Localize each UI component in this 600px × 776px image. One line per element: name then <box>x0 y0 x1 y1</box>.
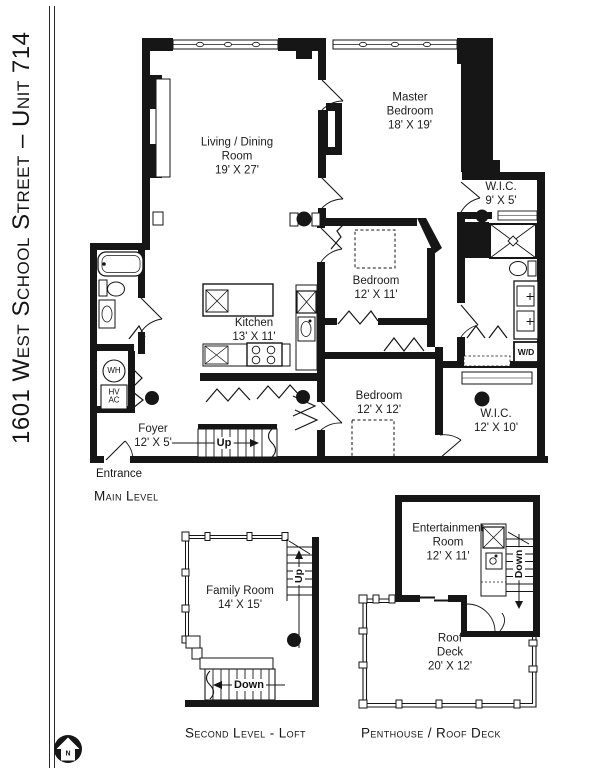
room-label-kitchen: Kitchen 13' X 11' <box>232 317 275 345</box>
main-level-caption: Main Level <box>94 489 159 504</box>
room-label-bedroom-one: Bedroom 12' X 11' <box>353 275 400 303</box>
master-bath-fixtures <box>490 211 538 362</box>
toilet-tank <box>528 261 536 276</box>
north-compass-icon <box>54 735 82 763</box>
room-label-roof-deck: Roof Deck 20' X 12' <box>428 632 472 673</box>
water-heater-label: WH <box>107 367 120 375</box>
room-label-foyer: Foyer 12' X 5' <box>134 423 172 451</box>
room-label-living-dining: Living / Dining Room 19' X 27' <box>184 136 290 177</box>
bathroom-fixtures <box>98 252 143 328</box>
floorplan-linework <box>0 0 600 776</box>
stairs-down-label-penthouse: Down <box>513 548 525 581</box>
bedroom1-closet-dashed <box>355 230 395 268</box>
entrance-label: Entrance <box>96 468 142 480</box>
room-label-walk-in-closet: W.I.C. 12' X 10' <box>474 408 518 436</box>
penthouse-caption: Penthouse / Roof Deck <box>361 726 501 741</box>
room-label-entertainment: Entertainment Room 12' X 11' <box>398 522 498 563</box>
compass-north-label: N <box>65 751 70 758</box>
loft-landing <box>186 636 273 669</box>
stairs-up-label-loft: Up <box>293 567 305 585</box>
toilet <box>510 262 527 276</box>
media-niche-slot <box>328 111 335 147</box>
bedroom2-closet-dashed <box>352 420 394 458</box>
stairs-up-label-main: Up <box>215 437 234 449</box>
washer-dryer-label: W/D <box>518 347 535 357</box>
stairs-up-loft <box>287 539 312 648</box>
second-level-caption: Second Level - Loft <box>185 726 306 741</box>
toilet-tank <box>99 280 107 296</box>
stairs-down-label-loft: Down <box>232 679 266 691</box>
hvac-label: HV AC <box>107 389 122 406</box>
room-label-bedroom-two: Bedroom 12' X 12' <box>356 390 403 418</box>
main-level-plan <box>90 38 548 463</box>
media-niche <box>156 79 170 177</box>
room-label-master-wic: W.I.C. 9' X 5' <box>485 181 516 209</box>
toilet <box>108 282 125 296</box>
room-label-master-bedroom: Master Bedroom 18' X 19' <box>379 91 441 132</box>
room-label-family-room: Family Room 14' X 15' <box>206 585 274 613</box>
range <box>247 343 282 366</box>
support-column <box>287 633 301 647</box>
